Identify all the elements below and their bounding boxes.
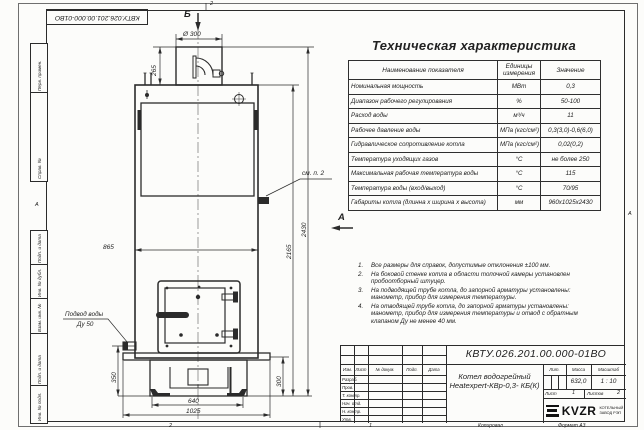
row-utv: Утв. [342,417,352,422]
lit-label: Лит. [543,367,566,372]
foot-left [150,389,170,396]
door-hinge-bottom [222,329,238,340]
col-list: Лист [354,367,368,372]
product-name: Котел водогрейный Heatexpert-КВр-0,3- КБ… [446,364,543,398]
dim-chimney-height: 265 [151,65,158,76]
water-inlet-leader [63,319,128,343]
col-izm: Изм. [341,367,354,372]
dim-chimney-diameter: Ø 300 [183,31,201,38]
see-note-leader [266,179,332,196]
mass-value: 632,0 [566,378,591,385]
dim-body-width: 865 [103,244,114,251]
sheet-label: Лист [545,391,557,396]
see-note-label: см. п. 2 [302,170,324,177]
front-panel [141,103,254,196]
dim-overall-width: 1025 [186,408,200,415]
sample-fitting [258,197,269,204]
col-data: Дата [422,367,446,372]
water-inlet-stub [63,319,136,350]
row-prov: Пров. [342,385,353,390]
sheets-label: Листов [587,391,603,396]
view-label-b: Б [184,9,191,20]
dim-body-height: 2165 [286,245,293,259]
frame-ticks [206,3,320,428]
water-inlet-label-line2: Ду 50 [77,321,93,328]
top-fitting-right [232,92,246,106]
kvzr-logo-sub2: ЗАВОД РЭП [599,411,623,416]
scale-label: Масштаб [591,367,626,372]
kvzr-logo-icon [546,405,559,417]
sheet-value: 1 [572,390,575,396]
water-inlet-label-line1: Подвод воды [65,311,103,318]
col-docum: № докум. [368,367,402,372]
row-t-kontr: Т. контр. [342,393,361,398]
view-label-a: А [338,212,345,223]
ash-base [123,353,270,396]
row-nach-otd: Нач. отд. [342,401,361,406]
copy-label: Копировал [478,423,503,429]
row-n-kontr: Н. контр. [342,409,361,414]
door-handle [156,312,189,318]
view-arrow-a-glyph [331,225,353,230]
title-block: КВТУ.026.201.00.000-01ВО Изм. Лист № док… [340,345,625,422]
dim-overall-height: 2430 [301,223,308,237]
door-hinge-top [222,292,238,303]
sheets-value: 2 [617,390,620,396]
view-arrow-b-glyph [195,13,200,31]
scale-value: 1 : 10 [591,378,626,385]
product-name-line2: Heatexpert-КВр-0,3- КБ(К) [449,381,539,390]
col-podp: Подп. [402,367,422,372]
chimney-outlet [176,47,224,85]
dim-base-width: 640 [188,398,199,405]
boiler-body [135,73,269,358]
drawing-sheet: Перв. примен. Справ. № Подп. и дата Инв.… [0,0,644,430]
dim-base-height: 300 [276,376,283,387]
row-razrab: Разраб. [342,377,358,382]
dim-inlet-height: 350 [111,372,118,383]
mass-label: Масса [566,367,591,372]
format-label: Формат А3 [558,423,585,429]
product-name-line1: Котел водогрейный [458,372,530,381]
company-logo: KVZR КОТЕЛЬНЫЙ ЗАВОД РЭП [543,398,626,423]
title-doc-number: КВТУ.026.201.00.000-01ВО [446,348,626,360]
kvzr-logo-text: KVZR [562,404,597,418]
